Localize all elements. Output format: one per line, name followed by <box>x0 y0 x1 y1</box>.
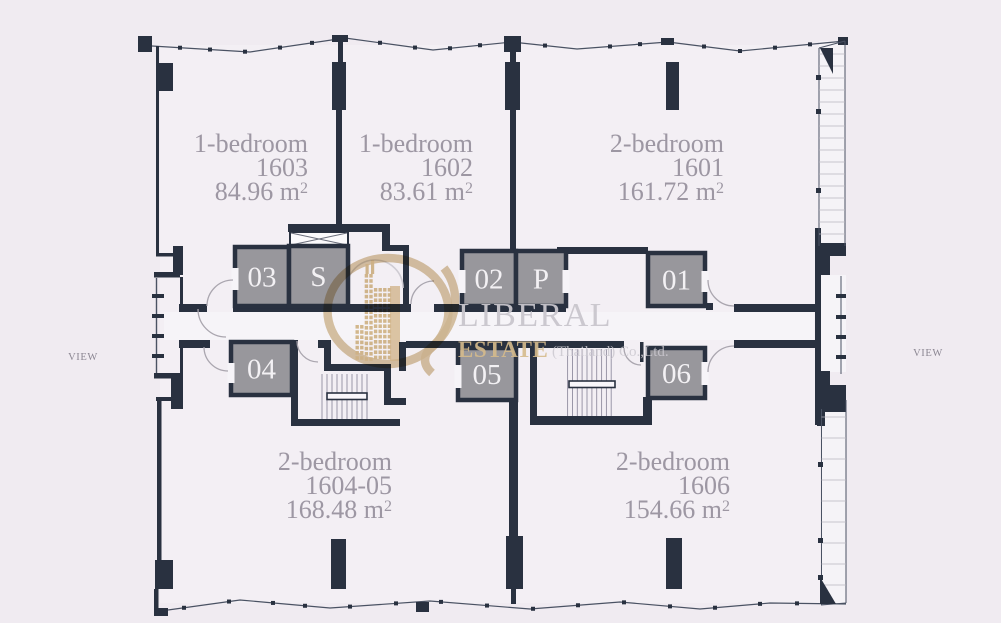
svg-text:06: 06 <box>662 358 691 390</box>
svg-text:(Thailand) Co.,Ltd.: (Thailand) Co.,Ltd. <box>552 344 669 360</box>
svg-text:P: P <box>533 264 549 296</box>
svg-text:168.48 m2: 168.48 m2 <box>286 495 392 524</box>
svg-text:83.61 m2: 83.61 m2 <box>380 177 473 206</box>
svg-text:154.66 m2: 154.66 m2 <box>624 495 730 524</box>
svg-text:VIEW: VIEW <box>913 348 943 359</box>
svg-text:ESTATE: ESTATE <box>458 337 548 362</box>
svg-text:02: 02 <box>475 264 504 296</box>
svg-text:01: 01 <box>662 265 691 297</box>
svg-text:VIEW: VIEW <box>68 352 98 363</box>
svg-text:S: S <box>310 261 326 293</box>
svg-text:03: 03 <box>248 262 277 294</box>
svg-text:05: 05 <box>473 359 502 391</box>
svg-text:LIBERAL: LIBERAL <box>458 297 612 334</box>
svg-text:161.72 m2: 161.72 m2 <box>618 177 724 206</box>
svg-text:04: 04 <box>247 354 277 386</box>
svg-text:84.96 m2: 84.96 m2 <box>215 177 308 206</box>
